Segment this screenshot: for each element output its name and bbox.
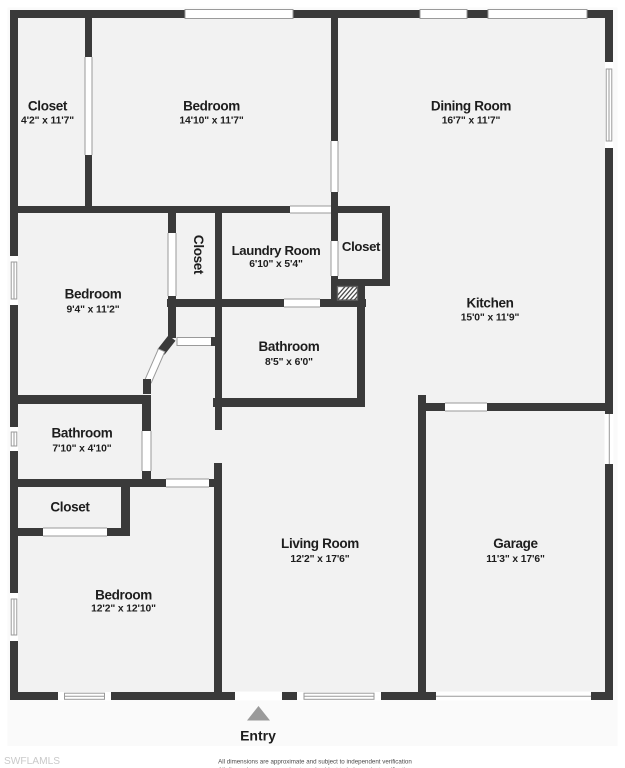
svg-text:Bathroom: Bathroom: [259, 339, 320, 354]
svg-text:Closet: Closet: [191, 235, 206, 275]
svg-text:Laundry Room: Laundry Room: [232, 243, 321, 258]
svg-text:Bedroom: Bedroom: [95, 588, 152, 603]
svg-text:SWFLAMLS: SWFLAMLS: [4, 756, 60, 767]
svg-text:Dining Room: Dining Room: [431, 99, 511, 114]
svg-text:12'2" x 12'10": 12'2" x 12'10": [91, 604, 156, 615]
svg-text:Closet: Closet: [28, 99, 68, 114]
svg-text:6'10" x 5'4": 6'10" x 5'4": [249, 259, 303, 270]
svg-text:Closet: Closet: [342, 239, 381, 254]
svg-text:Bathroom: Bathroom: [52, 426, 113, 441]
svg-text:15'0" x 11'9": 15'0" x 11'9": [461, 313, 520, 324]
svg-text:Bedroom: Bedroom: [65, 287, 122, 302]
svg-text:Bedroom: Bedroom: [183, 99, 240, 114]
svg-text:12'2" x 17'6": 12'2" x 17'6": [290, 554, 349, 565]
svg-text:11'3" x 17'6": 11'3" x 17'6": [486, 554, 545, 565]
svg-text:14'10" x 11'7": 14'10" x 11'7": [179, 116, 243, 127]
svg-text:Living Room: Living Room: [281, 536, 359, 551]
svg-text:Entry: Entry: [240, 728, 276, 744]
svg-text:All dimensions are approximate: All dimensions are approximate and subje…: [218, 759, 412, 766]
svg-text:Closet: Closet: [50, 500, 90, 515]
svg-text:16'7" x 11'7": 16'7" x 11'7": [442, 116, 501, 127]
svg-text:8'5" x 6'0": 8'5" x 6'0": [265, 357, 313, 368]
svg-text:9'4" x 11'2": 9'4" x 11'2": [67, 305, 120, 316]
svg-text:4'2" x 11'7": 4'2" x 11'7": [21, 116, 74, 127]
svg-text:7'10" x 4'10": 7'10" x 4'10": [52, 444, 111, 455]
svg-text:Garage: Garage: [493, 536, 538, 551]
svg-text:Kitchen: Kitchen: [466, 296, 513, 311]
